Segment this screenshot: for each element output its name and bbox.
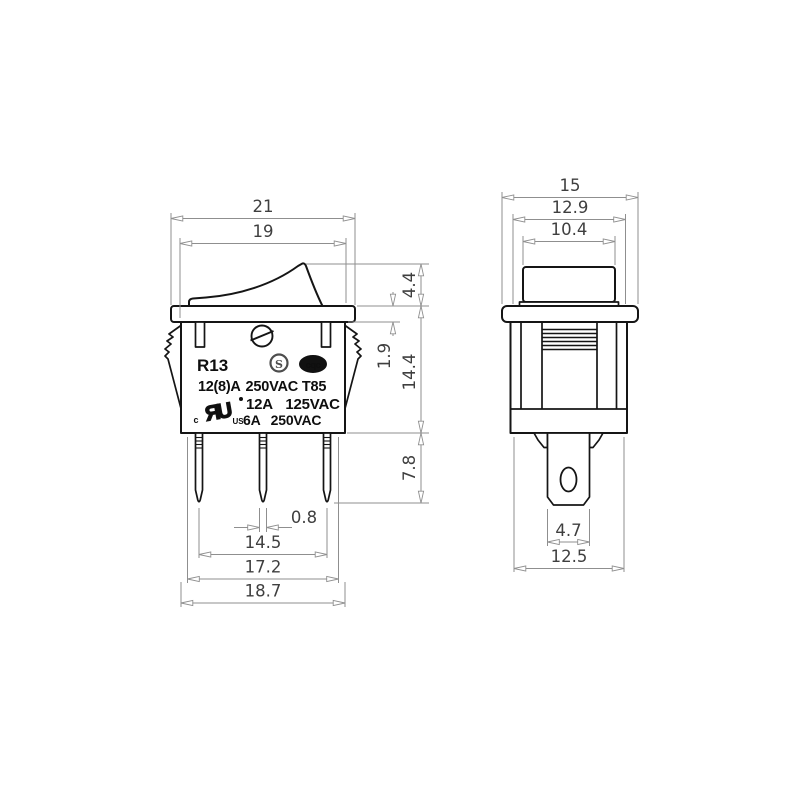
front-flange xyxy=(171,306,355,322)
side-body xyxy=(511,322,628,433)
drawing-svg: R13 S cqc 12(8)A250VAC T85 ЯU c US 12A 1… xyxy=(0,0,800,800)
front-rocker xyxy=(189,263,323,306)
svg-text:17.2: 17.2 xyxy=(245,558,282,577)
model-label: R13 xyxy=(197,356,228,375)
dim-rocker-width: 10.4 xyxy=(523,220,615,265)
dim-pin-length: 7.8 xyxy=(400,433,421,503)
svg-text:4.7: 4.7 xyxy=(555,521,581,540)
dim-flange-thickness: 1.9 xyxy=(375,292,394,369)
svg-text:14.4: 14.4 xyxy=(400,354,419,391)
front-pin-left xyxy=(196,433,203,502)
svg-text:S: S xyxy=(275,358,283,371)
front-post-left xyxy=(196,322,205,347)
svg-text:1.9: 1.9 xyxy=(375,343,394,369)
svg-text:0.8: 0.8 xyxy=(291,508,317,527)
dim-rocker-height: 4.4 xyxy=(400,264,421,306)
svg-text:c: c xyxy=(193,415,198,425)
svg-text:4.4: 4.4 xyxy=(400,272,419,298)
stem-hole xyxy=(561,468,577,492)
svg-text:18.7: 18.7 xyxy=(245,582,282,601)
screw-head-icon xyxy=(251,326,274,347)
side-view xyxy=(502,267,638,505)
side-barb-left xyxy=(534,433,548,448)
technical-drawing-rocker-switch: R13 S cqc 12(8)A250VAC T85 ЯU c US 12A 1… xyxy=(0,0,800,800)
dim-stem-width: 4.7 xyxy=(548,509,590,546)
rating-line1: 12(8)A250VAC T85 xyxy=(198,379,326,395)
dim-body-depth: 14.4 xyxy=(400,306,421,433)
rating-line3: 6A 250VAC xyxy=(243,412,321,428)
svg-text:19: 19 xyxy=(253,222,274,241)
side-barb-right xyxy=(590,433,604,448)
svg-text:cqc: cqc xyxy=(306,360,321,371)
front-view: R13 S cqc 12(8)A250VAC T85 ЯU c US 12A 1… xyxy=(165,263,361,501)
dim-body-width-upper: 18.7 xyxy=(181,582,345,608)
svg-text:21: 21 xyxy=(253,197,274,216)
svg-text:10.4: 10.4 xyxy=(551,220,588,239)
registered-dot xyxy=(239,397,243,401)
front-pin-right xyxy=(324,433,331,502)
front-post-right xyxy=(322,322,331,347)
svg-text:7.8: 7.8 xyxy=(400,455,419,481)
svg-text:12.5: 12.5 xyxy=(551,547,588,566)
rating-line2: 12A 125VAC xyxy=(246,396,340,413)
svg-text:12.9: 12.9 xyxy=(552,198,589,217)
front-pin-middle xyxy=(260,433,267,502)
svg-text:14.5: 14.5 xyxy=(245,533,282,552)
svg-text:15: 15 xyxy=(560,176,581,195)
side-rocker xyxy=(523,267,615,302)
dim-pin-width: 0.8 xyxy=(234,508,317,532)
side-flange xyxy=(502,306,638,322)
cqc-mark-icon: cqc xyxy=(300,356,327,373)
